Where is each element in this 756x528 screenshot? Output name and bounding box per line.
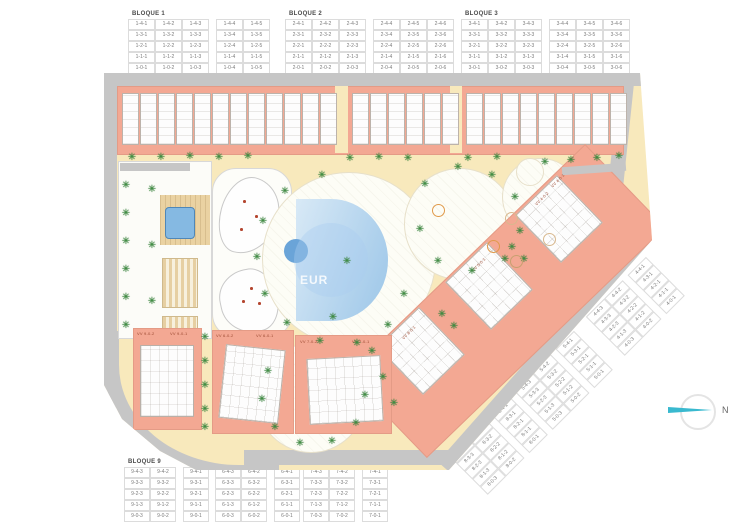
apartment-unit bbox=[388, 93, 405, 145]
apartment-unit bbox=[610, 93, 627, 145]
apartment-unit bbox=[502, 93, 519, 145]
unit-cell: 2-0-5 bbox=[400, 63, 427, 74]
palm-tree-icon: ✳ bbox=[488, 171, 496, 181]
table-bloque-1: BLOQUE 11-4-11-4-21-4-31-4-41-4-51-3-11-… bbox=[128, 11, 270, 74]
apartment-unit bbox=[140, 93, 157, 145]
unit-cell: 3-4-4 bbox=[549, 19, 576, 30]
unit-cell: 3-0-2 bbox=[488, 63, 515, 74]
unit-cell: 7-0-3 bbox=[303, 511, 329, 522]
unit-cell: 2-2-5 bbox=[400, 41, 427, 52]
unit-cell: 1-2-1 bbox=[128, 41, 155, 52]
palm-tree-icon: ✳ bbox=[450, 322, 458, 332]
unit-cell: 1-1-3 bbox=[182, 52, 209, 63]
unit-cell: 7-1-1 bbox=[362, 500, 388, 511]
unit-cell: 1-0-5 bbox=[243, 63, 270, 74]
palm-tree-icon: ✳ bbox=[346, 154, 354, 164]
palm-tree-icon: ✳ bbox=[567, 156, 575, 166]
unit-row bbox=[466, 93, 628, 145]
unit-cell: 7-1-2 bbox=[329, 500, 355, 511]
apartment-unit bbox=[302, 93, 319, 145]
palm-tree-icon: ✳ bbox=[281, 187, 289, 197]
palm-tree-icon: ✳ bbox=[201, 423, 209, 433]
palm-tree-icon: ✳ bbox=[215, 153, 223, 163]
apartment-unit bbox=[466, 93, 483, 145]
unit-cell: 9-1-1 bbox=[183, 500, 209, 511]
unit-cell: 3-2-1 bbox=[461, 41, 488, 52]
unit-cell: 2-1-1 bbox=[285, 52, 312, 63]
umbrella-dot-icon bbox=[250, 287, 253, 290]
palm-tree-icon: ✳ bbox=[404, 154, 412, 164]
palm-tree-icon: ✳ bbox=[264, 367, 272, 377]
unit-cell: 1-0-4 bbox=[216, 63, 243, 74]
unit-cell: 1-4-2 bbox=[155, 19, 182, 30]
garden-court bbox=[118, 161, 212, 339]
palm-tree-icon: ✳ bbox=[416, 225, 424, 235]
apartment-unit bbox=[406, 93, 423, 145]
palm-tree-icon: ✳ bbox=[468, 267, 476, 277]
unit-cell: 9-4-2 bbox=[150, 467, 176, 478]
villa-label: VV 9-0-2 bbox=[137, 331, 154, 336]
unit-cell: 3-3-4 bbox=[549, 30, 576, 41]
palm-tree-icon: ✳ bbox=[122, 181, 130, 191]
unit-row bbox=[352, 93, 460, 145]
compass: N bbox=[664, 392, 739, 430]
unit-cell: 3-1-2 bbox=[488, 52, 515, 63]
palm-tree-icon: ✳ bbox=[493, 153, 501, 163]
palm-tree-icon: ✳ bbox=[259, 217, 267, 227]
unit-cell: 2-1-6 bbox=[427, 52, 454, 63]
unit-cell: 3-0-3 bbox=[515, 63, 542, 74]
unit-cell: 3-2-2 bbox=[488, 41, 515, 52]
palm-tree-icon: ✳ bbox=[128, 153, 136, 163]
unit-cell: 9-3-2 bbox=[150, 478, 176, 489]
palm-tree-icon: ✳ bbox=[296, 439, 304, 449]
palm-tree-icon: ✳ bbox=[201, 405, 209, 415]
unit-cell: 9-4-3 bbox=[124, 467, 150, 478]
palm-tree-icon: ✳ bbox=[122, 293, 130, 303]
road-top bbox=[104, 73, 656, 86]
unit-cell: 3-2-3 bbox=[515, 41, 542, 52]
palm-tree-icon: ✳ bbox=[318, 171, 326, 181]
unit-cell: 2-2-3 bbox=[339, 41, 366, 52]
unit-cell: 7-2-2 bbox=[329, 489, 355, 500]
villa-label: VV 9-0-1 bbox=[170, 331, 187, 336]
unit-cell: 2-3-2 bbox=[312, 30, 339, 41]
watermark-text: EUR bbox=[300, 273, 336, 287]
unit-cell: 3-0-6 bbox=[603, 63, 630, 74]
palm-tree-icon: ✳ bbox=[390, 399, 398, 409]
unit-cell: 2-2-6 bbox=[427, 41, 454, 52]
bloque-title: BLOQUE 3 bbox=[465, 11, 630, 17]
unit-cell: 2-0-4 bbox=[373, 63, 400, 74]
unit-cell: 6-0-1 bbox=[274, 511, 300, 522]
unit-cell: 2-0-3 bbox=[339, 63, 366, 74]
unit-cell: 1-1-5 bbox=[243, 52, 270, 63]
villa-label: VV 6-0-2 bbox=[216, 333, 233, 338]
unit-cell: 1-2-4 bbox=[216, 41, 243, 52]
palm-tree-icon: ✳ bbox=[541, 158, 549, 168]
pergola-wall bbox=[120, 163, 190, 171]
unit-cell: 2-3-3 bbox=[339, 30, 366, 41]
apartment-unit bbox=[574, 93, 591, 145]
palm-tree-icon: ✳ bbox=[438, 310, 446, 320]
unit-cell: 2-0-6 bbox=[427, 63, 454, 74]
unit-cell: 7-2-1 bbox=[362, 489, 388, 500]
unit-cell: 2-3-5 bbox=[400, 30, 427, 41]
table-bloque-2: BLOQUE 22-4-12-4-22-4-32-4-42-4-52-4-62-… bbox=[285, 11, 454, 74]
unit-cell: 2-4-1 bbox=[285, 19, 312, 30]
palm-tree-icon: ✳ bbox=[511, 193, 519, 203]
palm-tree-icon: ✳ bbox=[157, 153, 165, 163]
palm-tree-icon: ✳ bbox=[384, 321, 392, 331]
palm-tree-icon: ✳ bbox=[261, 290, 269, 300]
palm-tree-icon: ✳ bbox=[201, 333, 209, 343]
palm-tree-icon: ✳ bbox=[343, 257, 351, 267]
palm-tree-icon: ✳ bbox=[253, 253, 261, 263]
palm-tree-icon: ✳ bbox=[329, 313, 337, 323]
palm-tree-icon: ✳ bbox=[244, 152, 252, 162]
unit-cell: 1-3-1 bbox=[128, 30, 155, 41]
apartment-unit bbox=[424, 93, 441, 145]
plaza-circle-small bbox=[516, 158, 544, 186]
palm-tree-icon: ✳ bbox=[508, 243, 516, 253]
palm-tree-icon: ✳ bbox=[201, 381, 209, 391]
apartment-unit bbox=[194, 93, 211, 145]
unit-cell: 3-4-3 bbox=[515, 19, 542, 30]
unit-cell: 1-0-1 bbox=[128, 63, 155, 74]
unit-cell: 6-1-1 bbox=[274, 500, 300, 511]
apartment-unit bbox=[176, 93, 193, 145]
palm-tree-icon: ✳ bbox=[283, 319, 291, 329]
umbrella-dot-icon bbox=[240, 228, 243, 231]
pergola bbox=[162, 258, 198, 308]
unit-cell: 9-2-3 bbox=[124, 489, 150, 500]
umbrella-dot-icon bbox=[243, 200, 246, 203]
apartment-unit bbox=[266, 93, 283, 145]
unit-cell: 6-1-2 bbox=[241, 500, 267, 511]
unit-cell: 1-0-2 bbox=[155, 63, 182, 74]
palm-tree-icon: ✳ bbox=[375, 153, 383, 163]
playground-icon bbox=[487, 240, 500, 253]
unit-cell: 7-3-1 bbox=[362, 478, 388, 489]
unit-cell: 3-1-4 bbox=[549, 52, 576, 63]
unit-cell: 1-1-4 bbox=[216, 52, 243, 63]
unit-cell: 3-1-3 bbox=[515, 52, 542, 63]
unit-cell: 2-2-1 bbox=[285, 41, 312, 52]
palm-tree-icon: ✳ bbox=[122, 209, 130, 219]
umbrella-dot-icon bbox=[255, 215, 258, 218]
palm-tree-icon: ✳ bbox=[400, 290, 408, 300]
unit-cell: 1-2-3 bbox=[182, 41, 209, 52]
villa-label: VV 6-0-1 bbox=[256, 333, 273, 338]
unit-cell: 2-0-2 bbox=[312, 63, 339, 74]
apartment-unit bbox=[248, 93, 265, 145]
unit-cell: 2-1-3 bbox=[339, 52, 366, 63]
unit-cell: 2-1-5 bbox=[400, 52, 427, 63]
playground-icon bbox=[505, 212, 518, 225]
apartment-unit bbox=[212, 93, 229, 145]
playground-icon bbox=[543, 233, 556, 246]
unit-cell: 7-1-3 bbox=[303, 500, 329, 511]
unit-cell: 9-0-1 bbox=[183, 511, 209, 522]
unit-cell: 1-2-5 bbox=[243, 41, 270, 52]
unit-cell: 3-1-1 bbox=[461, 52, 488, 63]
unit-cell: 6-3-1 bbox=[274, 478, 300, 489]
palm-tree-icon: ✳ bbox=[122, 237, 130, 247]
unit-cell: 9-0-2 bbox=[150, 511, 176, 522]
unit-cell: 3-3-3 bbox=[515, 30, 542, 41]
unit-cell: 9-3-3 bbox=[124, 478, 150, 489]
unit-cell: 3-0-1 bbox=[461, 63, 488, 74]
palm-tree-icon: ✳ bbox=[201, 357, 209, 367]
palm-tree-icon: ✳ bbox=[328, 437, 336, 447]
unit-cell: 6-0-2 bbox=[241, 511, 267, 522]
unit-cell: 3-0-4 bbox=[549, 63, 576, 74]
unit-cell: 1-4-1 bbox=[128, 19, 155, 30]
palm-tree-icon: ✳ bbox=[122, 265, 130, 275]
unit-cell: 3-3-1 bbox=[461, 30, 488, 41]
unit-cell: 2-2-4 bbox=[373, 41, 400, 52]
unit-cell: 9-0-3 bbox=[124, 511, 150, 522]
unit-row bbox=[122, 93, 338, 145]
unit-cell: 6-2-3 bbox=[215, 489, 241, 500]
unit-cell: 2-0-1 bbox=[285, 63, 312, 74]
unit-cell: 3-3-6 bbox=[603, 30, 630, 41]
north-label: N bbox=[722, 405, 729, 415]
unit-cell: 3-3-5 bbox=[576, 30, 603, 41]
playground-icon bbox=[432, 204, 445, 217]
unit-cell: 3-4-5 bbox=[576, 19, 603, 30]
unit-cell: 1-4-5 bbox=[243, 19, 270, 30]
palm-tree-icon: ✳ bbox=[186, 152, 194, 162]
palm-tree-icon: ✳ bbox=[593, 154, 601, 164]
unit-cell: 9-2-1 bbox=[183, 489, 209, 500]
unit-cell: 1-1-1 bbox=[128, 52, 155, 63]
bloque-title: BLOQUE 2 bbox=[289, 11, 454, 17]
palm-tree-icon: ✳ bbox=[353, 339, 361, 349]
unit-cell: 9-3-1 bbox=[183, 478, 209, 489]
palm-tree-icon: ✳ bbox=[316, 337, 324, 347]
apartment-unit bbox=[122, 93, 139, 145]
unit-cell: 2-4-6 bbox=[427, 19, 454, 30]
palm-tree-icon: ✳ bbox=[352, 419, 360, 429]
site-plan: EUR VV 9-0-2 VV 9-0-1 VV 6-0-2 VV 6-0-1 … bbox=[104, 73, 660, 470]
unit-cell: 1-4-3 bbox=[182, 19, 209, 30]
unit-cell: 1-1-2 bbox=[155, 52, 182, 63]
unit-cell: 3-4-1 bbox=[461, 19, 488, 30]
apartment-unit bbox=[352, 93, 369, 145]
palm-tree-icon: ✳ bbox=[421, 180, 429, 190]
unit-cell: 1-3-3 bbox=[182, 30, 209, 41]
bloque-title: BLOQUE 1 bbox=[132, 11, 270, 17]
unit-cell: 1-3-4 bbox=[216, 30, 243, 41]
unit-cell: 3-0-5 bbox=[576, 63, 603, 74]
unit-cell: 1-4-4 bbox=[216, 19, 243, 30]
unit-cell: 2-4-3 bbox=[339, 19, 366, 30]
unit-cell: 6-2-2 bbox=[241, 489, 267, 500]
unit-cell: 6-3-2 bbox=[241, 478, 267, 489]
apartment-unit bbox=[370, 93, 387, 145]
unit-cell: 6-2-1 bbox=[274, 489, 300, 500]
palm-tree-icon: ✳ bbox=[516, 227, 524, 237]
apartment-unit bbox=[556, 93, 573, 145]
umbrella-dot-icon bbox=[258, 302, 261, 305]
palm-tree-icon: ✳ bbox=[361, 391, 369, 401]
unit-cell: 7-0-1 bbox=[362, 511, 388, 522]
palm-tree-icon: ✳ bbox=[368, 347, 376, 357]
palm-tree-icon: ✳ bbox=[271, 423, 279, 433]
unit-cell: 7-3-3 bbox=[303, 478, 329, 489]
unit-cell: 1-0-3 bbox=[182, 63, 209, 74]
apartment-unit bbox=[442, 93, 459, 145]
palm-tree-icon: ✳ bbox=[379, 373, 387, 383]
villa-label: VV 7-0-2 bbox=[300, 339, 317, 344]
unit-cell: 3-2-6 bbox=[603, 41, 630, 52]
unit-cell: 7-0-2 bbox=[329, 511, 355, 522]
apartment-unit bbox=[230, 93, 247, 145]
unit-cell: 2-4-5 bbox=[400, 19, 427, 30]
unit-cell: 2-4-2 bbox=[312, 19, 339, 30]
building-footprint-b7 bbox=[306, 355, 383, 425]
unit-cell: 1-3-2 bbox=[155, 30, 182, 41]
unit-cell: 9-1-3 bbox=[124, 500, 150, 511]
building-footprint-b9 bbox=[140, 345, 194, 417]
unit-cell: 3-3-2 bbox=[488, 30, 515, 41]
unit-cell: 6-0-3 bbox=[215, 511, 241, 522]
unit-cell: 3-2-5 bbox=[576, 41, 603, 52]
unit-cell: 6-3-3 bbox=[215, 478, 241, 489]
unit-cell: 2-3-4 bbox=[373, 30, 400, 41]
unit-cell: 2-2-2 bbox=[312, 41, 339, 52]
playground-icon bbox=[510, 255, 523, 268]
unit-cell: 3-2-4 bbox=[549, 41, 576, 52]
north-arrow-icon bbox=[668, 407, 712, 413]
palm-tree-icon: ✳ bbox=[454, 163, 462, 173]
unit-cell: 3-4-6 bbox=[603, 19, 630, 30]
palm-tree-icon: ✳ bbox=[148, 185, 156, 195]
apartment-unit bbox=[520, 93, 537, 145]
palm-tree-icon: ✳ bbox=[148, 297, 156, 307]
palm-tree-icon: ✳ bbox=[434, 257, 442, 267]
siteplan-page: BLOQUE 11-4-11-4-21-4-31-4-41-4-51-3-11-… bbox=[0, 0, 756, 528]
apartment-unit bbox=[284, 93, 301, 145]
unit-cell: 2-3-1 bbox=[285, 30, 312, 41]
apartment-unit bbox=[484, 93, 501, 145]
apartment-unit bbox=[320, 93, 337, 145]
building-footprint-b6 bbox=[218, 344, 285, 424]
palm-tree-icon: ✳ bbox=[464, 154, 472, 164]
palm-tree-icon: ✳ bbox=[615, 152, 623, 162]
unit-cell: 9-1-2 bbox=[150, 500, 176, 511]
unit-cell: 6-1-3 bbox=[215, 500, 241, 511]
palm-tree-icon: ✳ bbox=[122, 321, 130, 331]
unit-cell: 3-4-2 bbox=[488, 19, 515, 30]
unit-cell: 2-3-6 bbox=[427, 30, 454, 41]
unit-cell: 3-1-6 bbox=[603, 52, 630, 63]
unit-cell: 7-3-2 bbox=[329, 478, 355, 489]
unit-cell: 2-1-2 bbox=[312, 52, 339, 63]
unit-cell: 7-2-3 bbox=[303, 489, 329, 500]
table-bloque-3: BLOQUE 33-4-13-4-23-4-33-4-43-4-53-4-63-… bbox=[461, 11, 630, 74]
palm-tree-icon: ✳ bbox=[148, 241, 156, 251]
apartment-unit bbox=[592, 93, 609, 145]
palm-tree-icon: ✳ bbox=[501, 255, 509, 265]
unit-cell: 1-2-2 bbox=[155, 41, 182, 52]
unit-cell: 2-4-4 bbox=[373, 19, 400, 30]
apartment-unit bbox=[538, 93, 555, 145]
small-pool bbox=[165, 207, 195, 239]
palm-tree-icon: ✳ bbox=[258, 395, 266, 405]
unit-cell: 3-1-5 bbox=[576, 52, 603, 63]
unit-cell: 9-2-2 bbox=[150, 489, 176, 500]
unit-cell: 2-1-4 bbox=[373, 52, 400, 63]
unit-cell: 1-3-5 bbox=[243, 30, 270, 41]
umbrella-dot-icon bbox=[242, 300, 245, 303]
apartment-unit bbox=[158, 93, 175, 145]
